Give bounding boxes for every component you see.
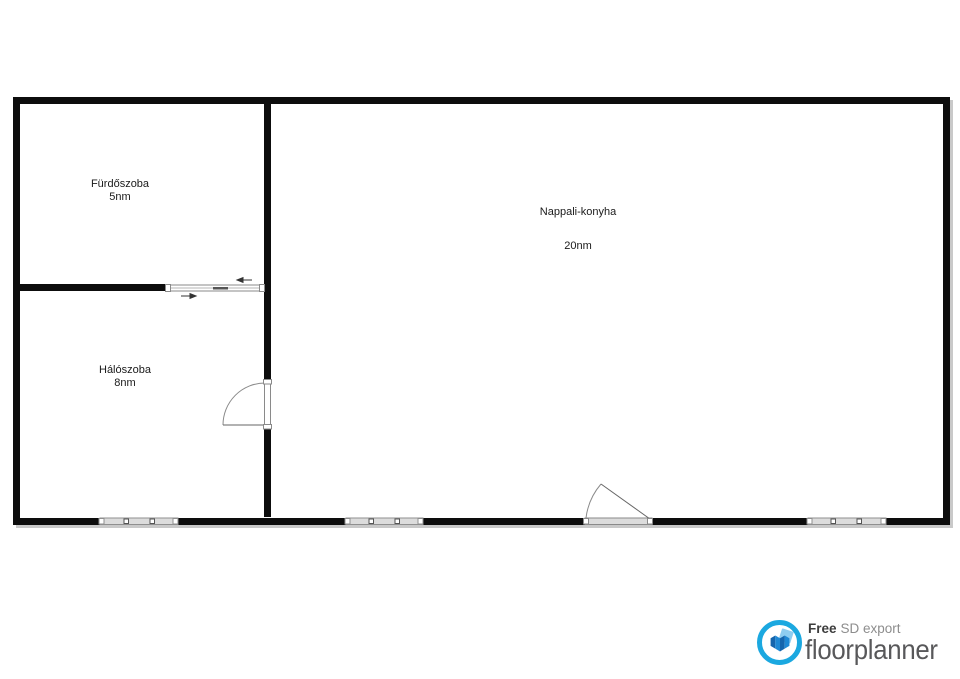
house-icon — [764, 627, 796, 659]
entry-door — [584, 484, 653, 525]
room-label-haloszoba: Hálószoba 8nm — [65, 364, 185, 390]
window — [807, 518, 886, 525]
floorplanner-wordmark: floorplanner — [805, 635, 938, 665]
swing-door-bedroom — [223, 380, 272, 430]
floorplan-export: OC OTTHON CENTRUM — [0, 0, 960, 679]
room-area: 8nm — [65, 377, 185, 390]
room-name: Fürdőszoba — [60, 178, 180, 191]
floorplanner-house-icon — [757, 620, 802, 665]
sliding-door — [166, 278, 265, 299]
window — [345, 518, 423, 525]
room-name: Nappali-konyha — [498, 206, 658, 219]
plan-vector-layer — [0, 0, 960, 679]
room-name: Hálószoba — [65, 364, 185, 377]
room-area: 5nm — [60, 191, 180, 204]
window — [99, 518, 178, 525]
room-label-furdoszoba: Fürdőszoba 5nm — [60, 178, 180, 204]
room-label-nappali-konyha: Nappali-konyha 20nm — [498, 206, 658, 253]
room-area: 20nm — [498, 240, 658, 253]
